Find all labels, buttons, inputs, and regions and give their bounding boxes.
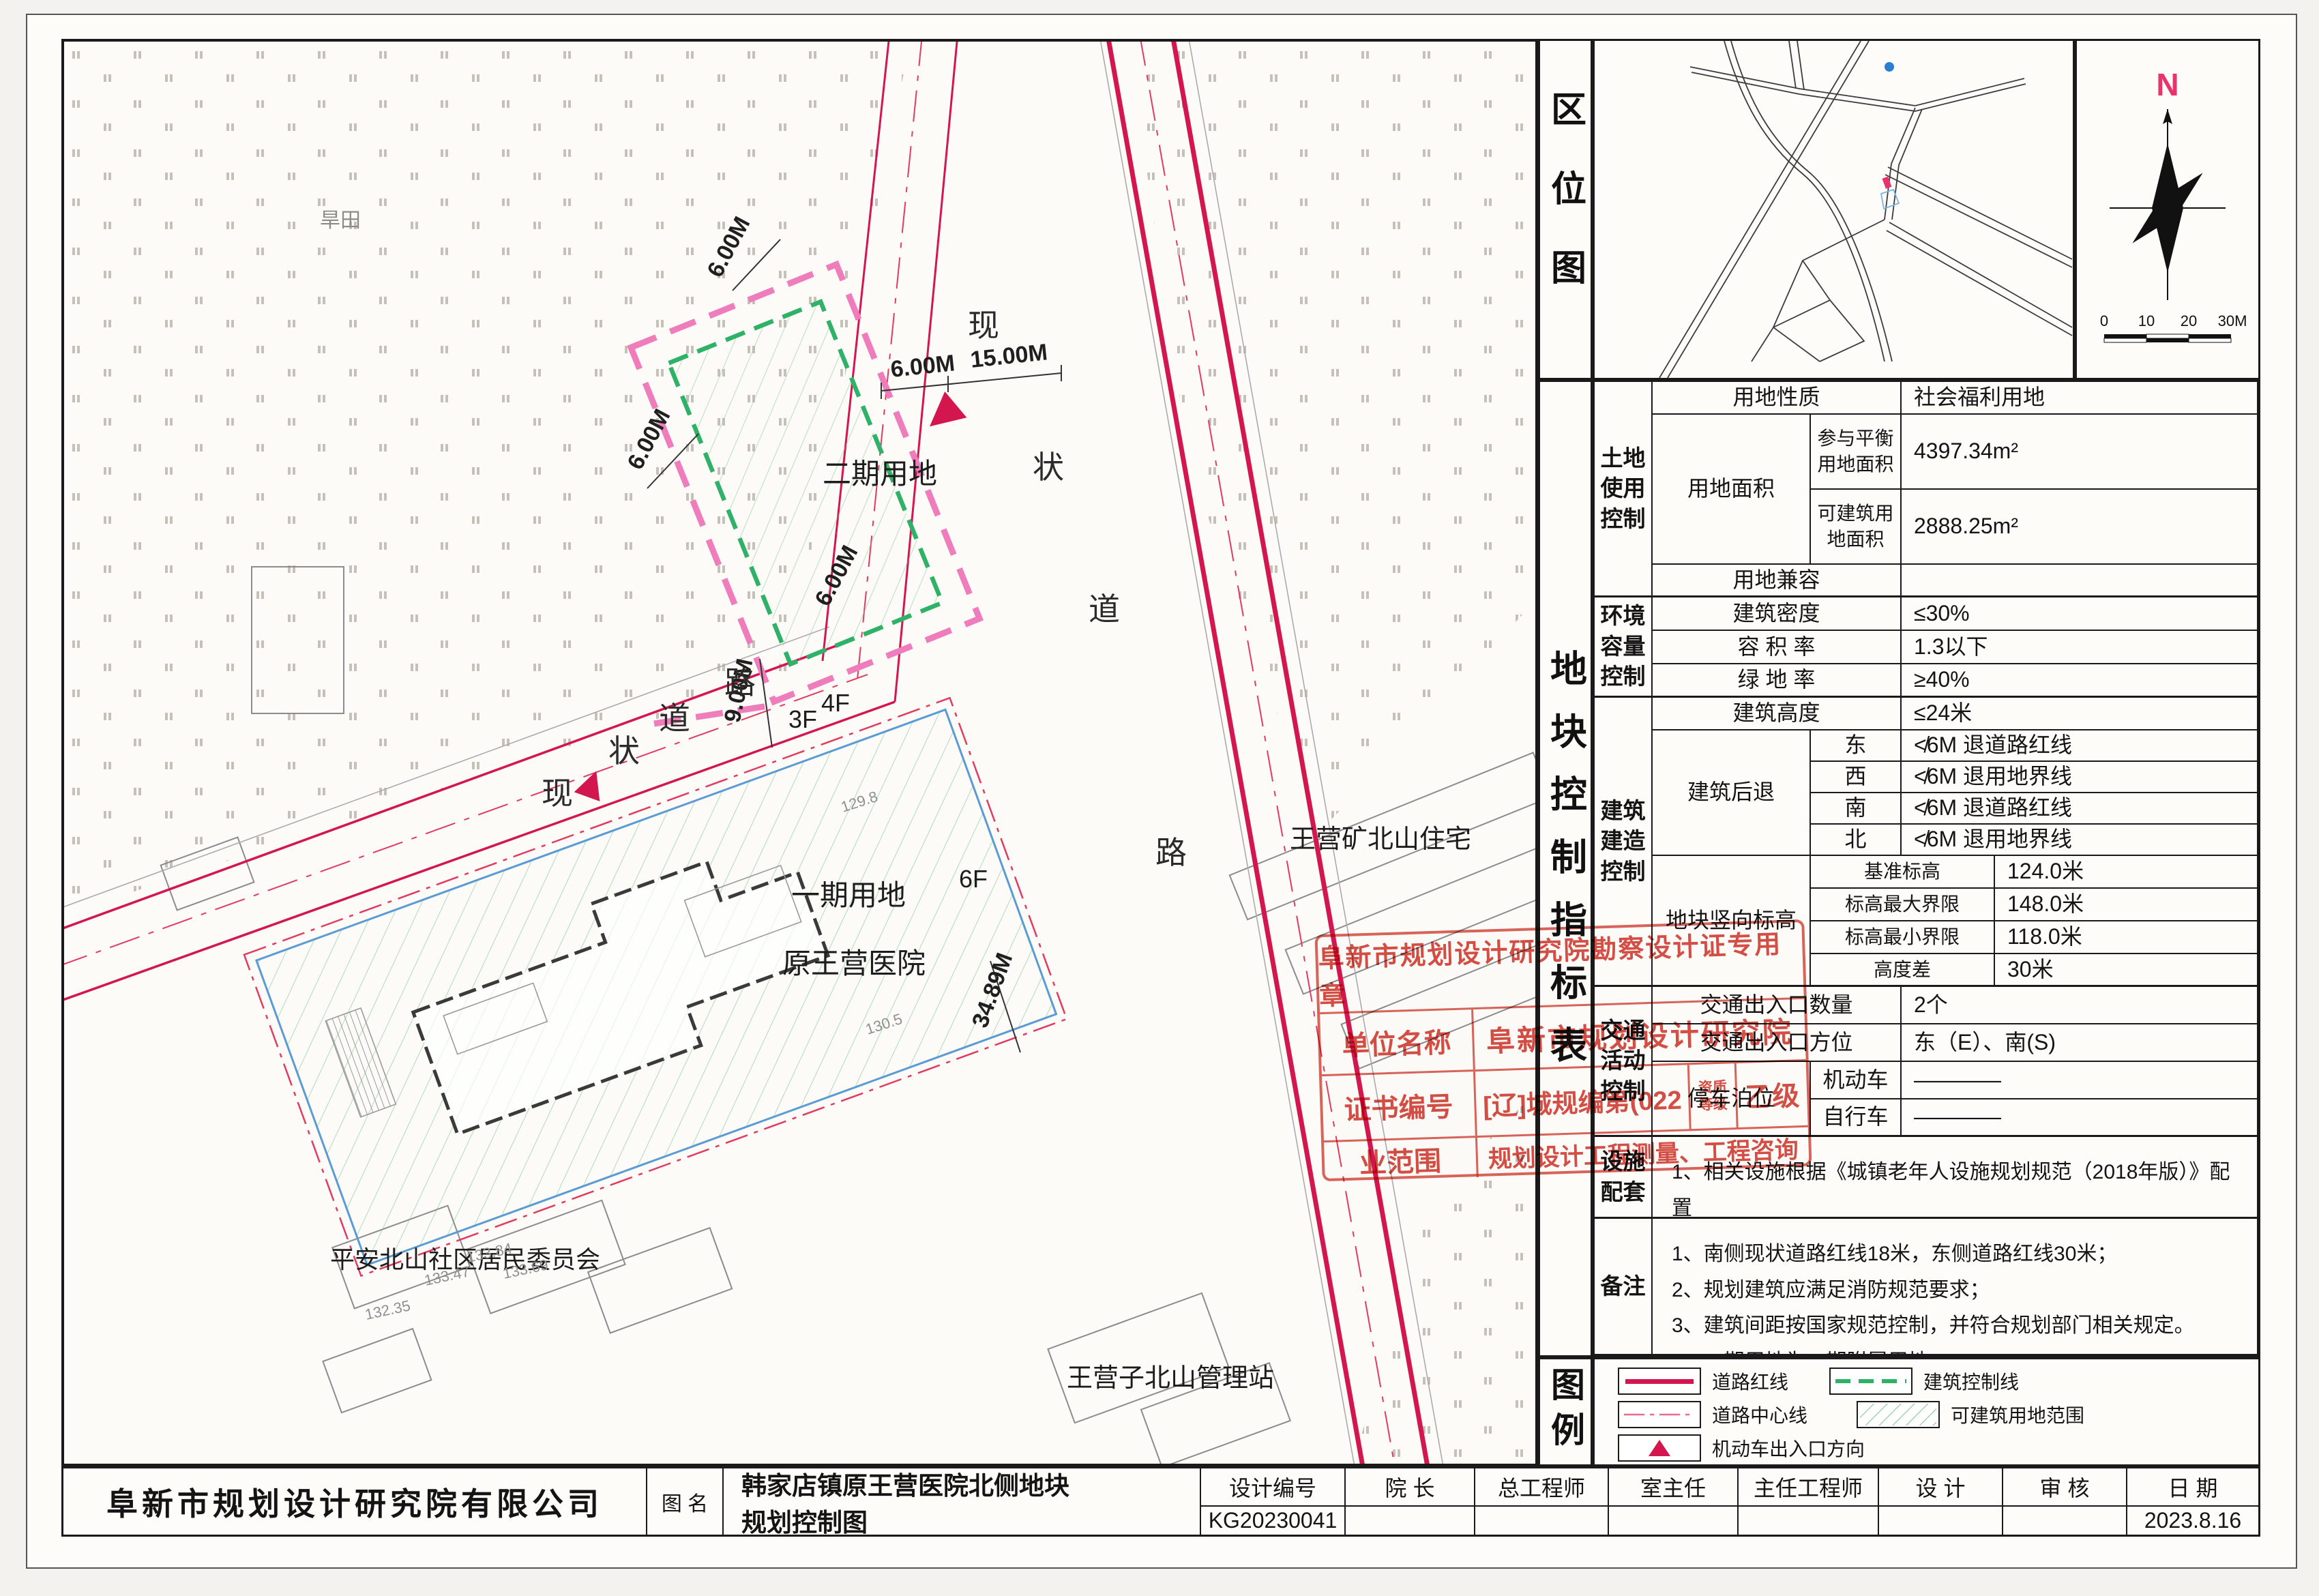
drawing-name-label: 图 名 (647, 1468, 724, 1535)
sheet-border: 旱田 (26, 14, 2297, 1569)
setback-val-w: ≮6M 退用地界线 (1902, 762, 2258, 793)
vert-label-min: 标高最小界限 (1811, 921, 1995, 954)
label-nature: 用地性质 (1653, 382, 1902, 415)
parcel1-label: 一期用地 (791, 879, 906, 911)
label-buildable-area: 可建筑用地面积 (1811, 490, 1902, 565)
value-entry-count: 2个 (1902, 987, 2258, 1024)
value-nature: 社会福利用地 (1902, 382, 2258, 415)
buildable-area-symbol (1857, 1401, 1940, 1428)
value-far: 1.3以下 (1902, 631, 2258, 664)
location-marker-blue (1885, 62, 1894, 72)
entrance-direction-symbol (1618, 1434, 1701, 1462)
title-block: 阜新市规划设计研究院有限公司 图 名 韩家店镇原王营医院北侧地块 规划控制图 设… (61, 1466, 2260, 1537)
col-chief-project-engineer: 主任工程师 (1739, 1468, 1879, 1535)
col-chief-engineer: 总工程师 (1475, 1468, 1609, 1535)
vert-val-diff: 30米 (1995, 954, 2258, 987)
svg-text:10: 10 (2138, 312, 2155, 329)
company-name: 阜新市规划设计研究院有限公司 (63, 1468, 647, 1535)
north-arrow-svg: N 0 10 20 30M (2077, 41, 2258, 378)
location-map (1593, 39, 2075, 380)
label-parking: 停车泊位 (1653, 1062, 1811, 1137)
hospital-label: 原王营医院 (782, 947, 926, 979)
label-setback: 建筑后退 (1653, 730, 1811, 856)
label-height: 建筑高度 (1653, 698, 1902, 730)
setback-val-s: ≮6M 退道路红线 (1902, 793, 2258, 825)
svg-text:状: 状 (1033, 449, 1064, 485)
vert-val-min: 118.0米 (1995, 921, 2258, 954)
legend-item-entrance: 机动车出入口方向 (1618, 1434, 2258, 1462)
value-buildable-area: 2888.25m² (1902, 490, 2258, 565)
remarks-content: 1、南侧现状道路红线18米，东侧道路红线30米； 2、规划建筑应满足消防规范要求… (1653, 1219, 2258, 1355)
label-green: 绿 地 率 (1653, 664, 1902, 698)
facility-content: 1、相关设施根据《城镇老年人设施规划规范（2018年版）》配置 (1653, 1137, 2258, 1219)
drawing-title-line1: 韩家店镇原王营医院北侧地块 (741, 1465, 1069, 1502)
label-far: 容 积 率 (1653, 631, 1902, 664)
remark-line: 4、二期用地为一期附属用地。 (1672, 1344, 1949, 1356)
location-panel-title: 区位图 (1538, 39, 1593, 380)
building-control-line-symbol (1829, 1368, 1912, 1395)
cat-remarks: 备注 (1595, 1219, 1653, 1355)
value-motor: ———— (1902, 1062, 2258, 1099)
svg-text:现: 现 (542, 775, 573, 811)
label-compat: 用地兼容 (1653, 565, 1902, 597)
col-reviewer: 审 核 (2003, 1468, 2127, 1535)
value-balance-area: 4397.34m² (1902, 415, 2258, 490)
remark-line: 1、南侧现状道路红线18米，东侧道路红线30米； (1672, 1237, 2117, 1273)
label-bike: 自行车 (1811, 1099, 1902, 1137)
station-label: 王营子北山管理站 (1067, 1364, 1274, 1393)
value-entry-dir: 东（E）、南(S) (1902, 1024, 2258, 1062)
remark-line: 3、建筑间距按国家规范控制，并符合规划部门相关规定。 (1672, 1308, 2195, 1344)
svg-text:道: 道 (659, 700, 690, 736)
location-panel-title-text: 区位图 (1540, 91, 1591, 328)
label-entry-dir: 交通出入口方位 (1653, 1024, 1902, 1062)
cat-land-use: 土地使用控制 (1595, 382, 1653, 597)
col-director: 院 长 (1346, 1468, 1475, 1535)
svg-text:道: 道 (1089, 591, 1120, 627)
indicator-table-title-text: 地块控制指标表 (1539, 649, 1593, 1089)
remark-line: 2、规划建筑应满足消防规范要求； (1672, 1273, 1990, 1309)
legend-item-center-line: 道路中心线 (1618, 1401, 1807, 1428)
farmland-label: 旱田 (320, 209, 361, 232)
north-label: N (2156, 67, 2178, 102)
planning-drawing-sheet: 旱田 (0, 0, 2319, 1596)
label-area: 用地面积 (1653, 415, 1811, 565)
site-plan-map: 旱田 (61, 39, 1538, 1466)
cat-building: 建筑建造控制 (1595, 698, 1653, 987)
svg-text:路: 路 (724, 665, 756, 700)
setback-dir-w: 西 (1811, 762, 1902, 793)
value-green: ≥40% (1902, 664, 2258, 698)
residence-label: 王营矿北山住宅 (1290, 825, 1471, 854)
road-red-line-symbol (1618, 1368, 1701, 1395)
setback-dir-s: 南 (1811, 793, 1902, 825)
label-balance-area: 参与平衡用地面积 (1811, 415, 1902, 490)
indicator-table: 土地使用控制 用地性质 社会福利用地 用地面积 参与平衡用地面积 4397.34… (1593, 380, 2260, 1357)
label-vertical: 地块竖向标高 (1653, 856, 1811, 987)
vert-label-base: 基准标高 (1811, 856, 1995, 889)
setback-val-n: ≮6M 退用地界线 (1902, 825, 2258, 856)
road-center-line-symbol (1618, 1401, 1701, 1428)
legend-title-text: 图例 (1541, 1367, 1590, 1457)
svg-text:20: 20 (2181, 312, 2197, 329)
vert-label-max: 标高最大界限 (1811, 889, 1995, 921)
north-scale-cell: N 0 10 20 30M (2075, 39, 2260, 380)
legend-item-road-red: 道路红线 (1618, 1368, 1788, 1395)
svg-text:路: 路 (1155, 835, 1187, 870)
site-plan-svg: 旱田 (64, 42, 1535, 1464)
value-height: ≤24米 (1902, 698, 2258, 730)
indicator-table-title: 地块控制指标表 (1538, 380, 1593, 1357)
setback-val-e: ≮6M 退道路红线 (1902, 730, 2258, 762)
legend: 道路红线 建筑控制线 道路中心线 可建筑用地范围 机动 (1593, 1357, 2260, 1466)
svg-text:状: 状 (608, 733, 640, 769)
floors-6f: 6F (959, 865, 988, 893)
floors-3f: 3F (788, 705, 817, 733)
cat-traffic: 交通活动控制 (1595, 987, 1653, 1137)
svg-text:0: 0 (2100, 312, 2108, 329)
col-designer: 设 计 (1879, 1468, 2003, 1535)
svg-text:30M: 30M (2218, 312, 2247, 329)
drawing-title: 韩家店镇原王营医院北侧地块 规划控制图 (724, 1468, 1201, 1535)
cat-facility: 设施配套 (1595, 1137, 1653, 1219)
svg-text:现: 现 (968, 308, 999, 343)
label-density: 建筑密度 (1653, 597, 1902, 631)
parcel2-label: 二期用地 (823, 458, 937, 490)
drawing-title-line2: 规划控制图 (741, 1502, 868, 1539)
value-bike: ———— (1902, 1099, 2258, 1137)
vert-label-diff: 高度差 (1811, 954, 1995, 987)
value-density: ≤30% (1902, 597, 2258, 631)
vert-val-max: 148.0米 (1995, 889, 2258, 921)
cat-environment: 环境容量控制 (1595, 597, 1653, 698)
col-room-director: 室主任 (1609, 1468, 1739, 1535)
floors-4f: 4F (821, 689, 850, 717)
vert-val-base: 124.0米 (1995, 856, 2258, 889)
legend-item-buildable: 可建筑用地范围 (1857, 1401, 2084, 1428)
setback-dir-e: 东 (1811, 730, 1902, 762)
legend-item-control-line: 建筑控制线 (1829, 1368, 2019, 1395)
value-compat (1902, 565, 2258, 597)
col-date: 日 期 2023.8.16 (2127, 1468, 2258, 1535)
label-motor: 机动车 (1811, 1062, 1902, 1099)
legend-title: 图例 (1538, 1357, 1593, 1466)
location-map-svg (1595, 41, 2073, 378)
label-entry-count: 交通出入口数量 (1653, 987, 1902, 1024)
col-design-no: 设计编号 KG20230041 (1201, 1468, 1346, 1535)
setback-dir-n: 北 (1811, 825, 1902, 856)
